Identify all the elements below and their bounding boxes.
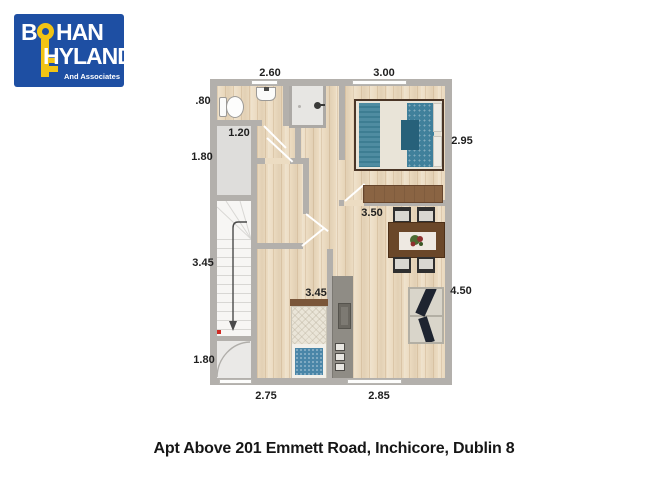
wall-below-shower (295, 128, 301, 160)
sofa-cushion-dark-bottom (418, 316, 435, 344)
door-gap-hall (265, 158, 290, 164)
dining-table (388, 222, 445, 258)
dining-chair-bottom-left (393, 257, 411, 273)
bed-pillow-white-bottom (433, 136, 442, 167)
stairs (217, 201, 251, 336)
dim-stairs-height: 3.45 (192, 257, 213, 269)
window-top-bathroom (251, 80, 278, 85)
dim-top-left: 2.60 (259, 67, 280, 79)
wall-bedroom1-left (339, 86, 345, 160)
wall-outer-right (445, 79, 452, 385)
bed-pillow-white-top (433, 103, 442, 132)
wall-outer-top (210, 79, 452, 86)
single-bed-headboard (290, 299, 328, 306)
wardrobe (363, 185, 443, 203)
shower-head-arm (320, 104, 325, 106)
sofa (408, 287, 444, 344)
bed-throw-teal (359, 103, 380, 167)
toilet-bowl (226, 96, 244, 118)
wall-hall-mid-vertical (303, 164, 309, 214)
window-bottom-living (347, 379, 402, 384)
bed-cushion-dark (401, 120, 419, 150)
address-caption: Apt Above 201 Emmett Road, Inchicore, Du… (0, 440, 668, 458)
dim-entry-height: 1.80 (193, 354, 214, 366)
dim-bottom-left: 2.75 (255, 390, 276, 402)
door-gap-bedroom1 (344, 200, 364, 206)
kitchen-sink-basin (341, 307, 348, 325)
wall-bedroom2-top (257, 243, 303, 249)
dining-chair-bottom-right (417, 257, 435, 273)
dim-living-height: 4.50 (450, 285, 471, 297)
wall-closet-bottom (210, 195, 257, 201)
floorplan: 2.60 3.00 .80 1.20 1.80 2.95 3.50 3.45 3… (0, 0, 668, 477)
dim-closet-width: 1.20 (228, 127, 249, 139)
dining-chair-top-left (393, 207, 411, 223)
wall-bathroom-right (283, 86, 289, 126)
dim-living-width: 3.50 (361, 207, 382, 219)
double-bed (354, 99, 444, 171)
single-bed-blanket-teal (295, 348, 323, 375)
hob-knob-1 (335, 343, 345, 351)
sink-tap-icon (264, 87, 269, 91)
table-plant-icon (408, 233, 426, 249)
shower-drain (298, 105, 301, 108)
kitchen-counter (332, 276, 353, 378)
dim-bedroom1-height: 2.95 (451, 135, 472, 147)
dim-bedroom2-length: 3.45 (305, 287, 326, 299)
smoke-detector-mark (217, 330, 221, 334)
window-top-bedroom1 (352, 80, 407, 85)
kitchen-sink (338, 303, 351, 329)
hob-knob-3 (335, 363, 345, 371)
sofa-cushion-dark-top (415, 287, 436, 317)
dim-bath-left: .80 (195, 95, 210, 107)
stair-winders-and-arrow (217, 201, 251, 336)
wall-outer-left (210, 79, 217, 385)
entrance-door-opening (219, 379, 252, 384)
dim-bottom-right: 2.85 (368, 390, 389, 402)
single-bed (290, 299, 328, 380)
hob-knob-2 (335, 353, 345, 361)
dim-top-right: 3.00 (373, 67, 394, 79)
dining-chair-top-right (417, 207, 435, 223)
real-estate-floorplan-image: B HAN HYLAND And Associates (0, 0, 668, 477)
entry-door-arc (217, 341, 251, 378)
dim-closet-height: 1.80 (191, 151, 212, 163)
